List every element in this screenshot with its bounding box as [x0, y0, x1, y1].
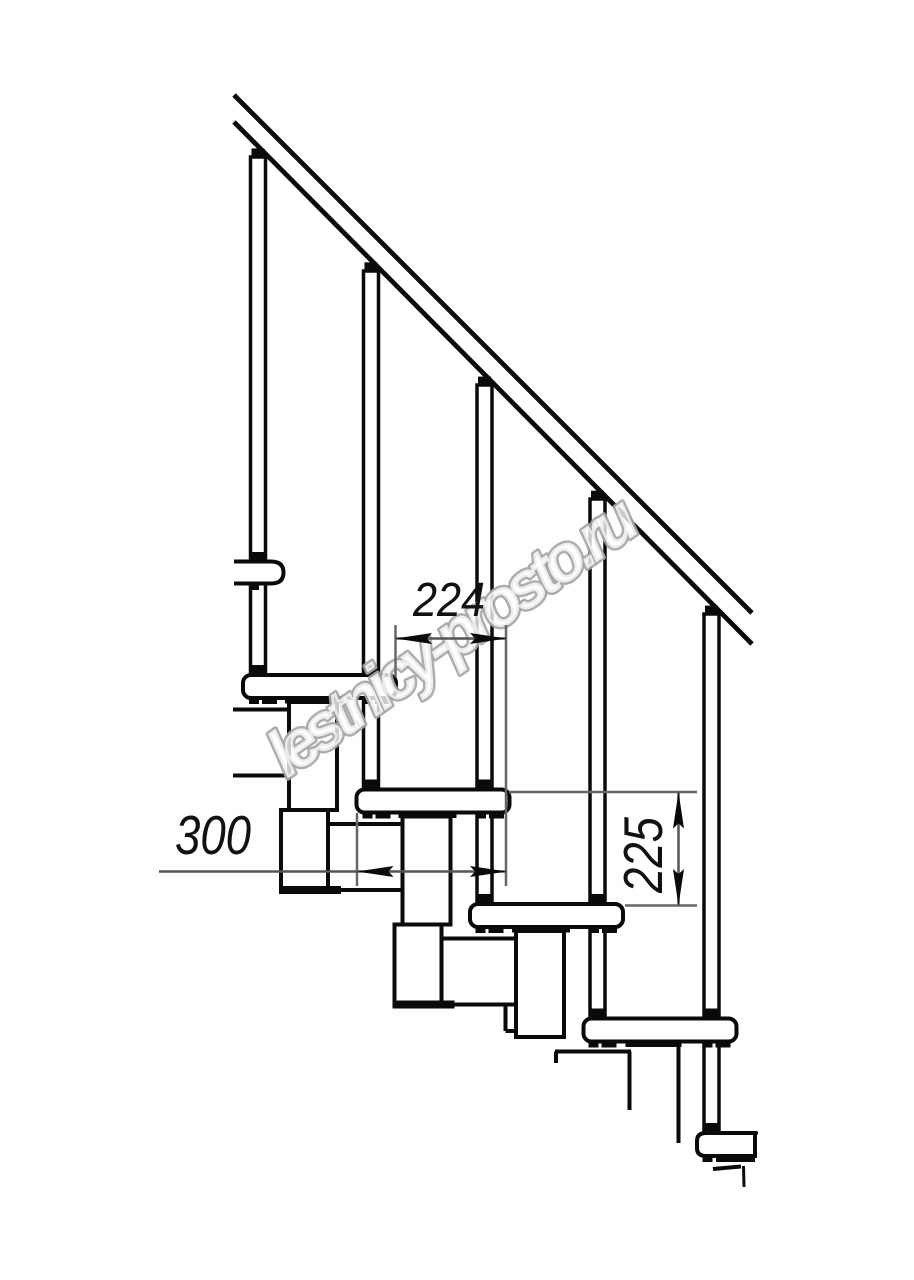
svg-text:300: 300 — [175, 804, 251, 866]
svg-text:225: 225 — [612, 817, 674, 894]
svg-text:224: 224 — [412, 574, 485, 627]
